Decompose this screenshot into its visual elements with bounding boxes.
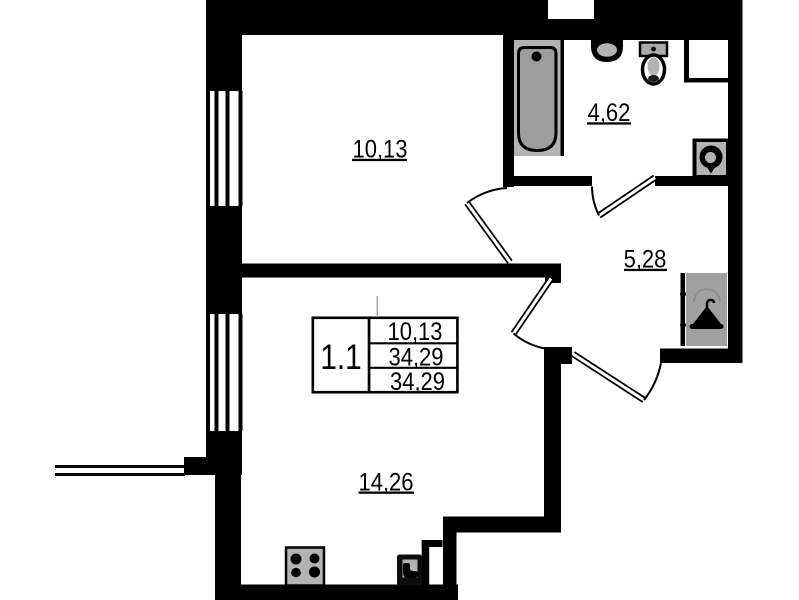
svg-text:4,62: 4,62 bbox=[588, 99, 631, 127]
svg-text:10,13: 10,13 bbox=[352, 135, 407, 163]
svg-text:1.1: 1.1 bbox=[320, 338, 361, 377]
svg-text:10,13: 10,13 bbox=[387, 318, 442, 346]
svg-text:34,29: 34,29 bbox=[390, 368, 445, 396]
svg-text:5,28: 5,28 bbox=[624, 245, 667, 273]
